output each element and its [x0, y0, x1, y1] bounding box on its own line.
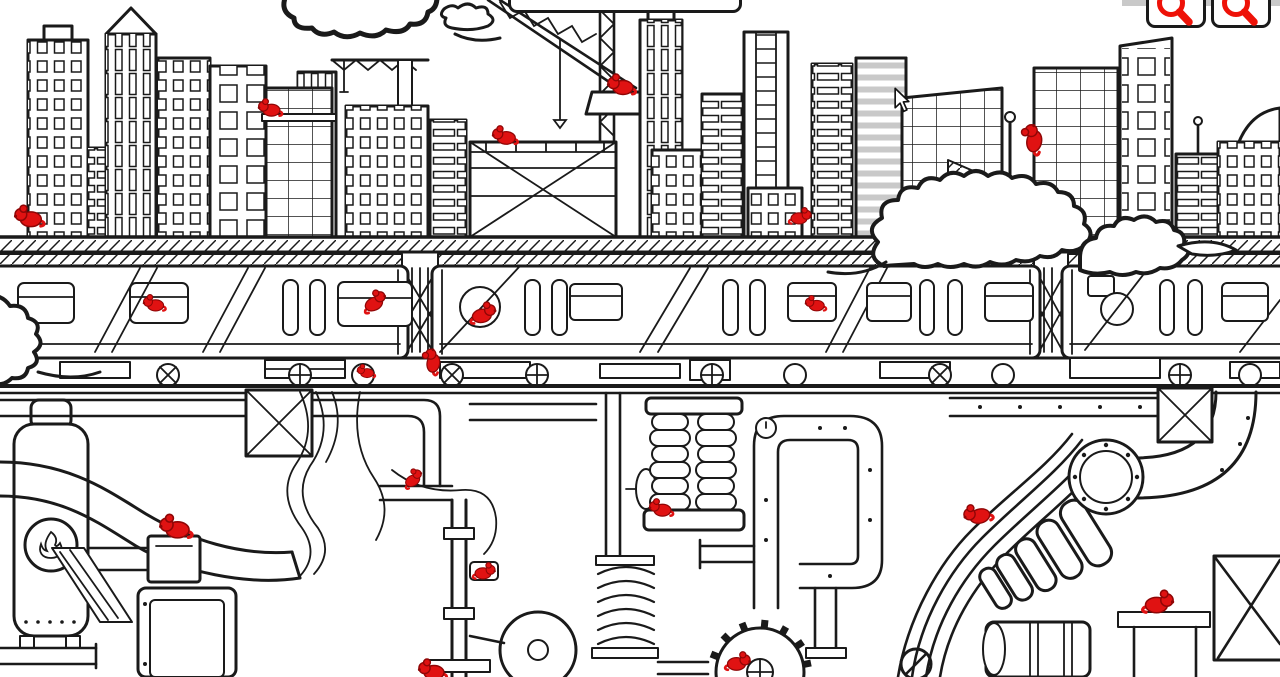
magnifier-button-2[interactable]: [1211, 0, 1271, 28]
hidden-mouse[interactable]: [648, 497, 675, 517]
hidden-mouse[interactable]: [158, 512, 195, 540]
hidden-mouse[interactable]: [1140, 588, 1175, 614]
hidden-mouse[interactable]: [13, 203, 47, 228]
stage: [0, 0, 1280, 677]
hidden-mouse[interactable]: [491, 124, 520, 146]
hidden-mouse[interactable]: [471, 561, 497, 580]
hidden-mouse[interactable]: [723, 650, 752, 672]
hidden-mouse[interactable]: [465, 298, 499, 326]
top-banner: [508, 0, 742, 13]
hidden-mouse[interactable]: [417, 346, 443, 378]
hidden-mouse[interactable]: [606, 72, 638, 96]
hidden-mouse[interactable]: [356, 363, 377, 379]
hidden-mouse[interactable]: [787, 206, 813, 225]
scene-illustration: [0, 0, 1280, 677]
magnifier-button-1[interactable]: [1146, 0, 1206, 28]
metal-door: [138, 588, 236, 677]
hidden-mouse[interactable]: [804, 294, 828, 312]
hidden-mouse[interactable]: [257, 97, 284, 117]
boiler: [14, 400, 88, 648]
hidden-mouse[interactable]: [142, 293, 168, 312]
hidden-mouse[interactable]: [417, 657, 449, 677]
barrel: [983, 622, 1090, 677]
construction-site: [470, 142, 616, 237]
